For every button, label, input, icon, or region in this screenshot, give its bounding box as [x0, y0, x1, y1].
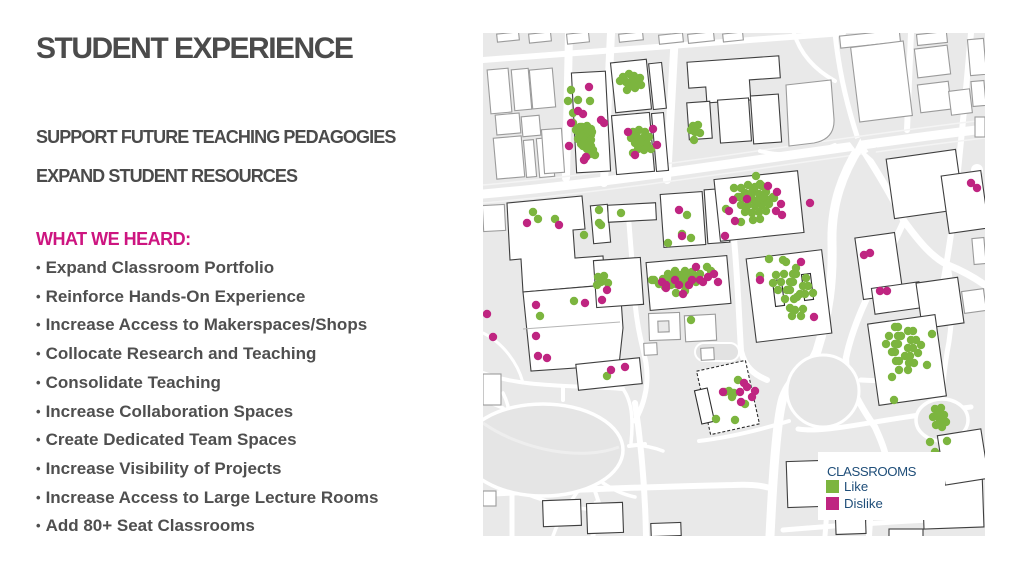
svg-text:Dislike: Dislike: [844, 496, 883, 511]
svg-text:CLASSROOMS: CLASSROOMS: [827, 464, 917, 479]
svg-text:Like: Like: [844, 479, 868, 494]
